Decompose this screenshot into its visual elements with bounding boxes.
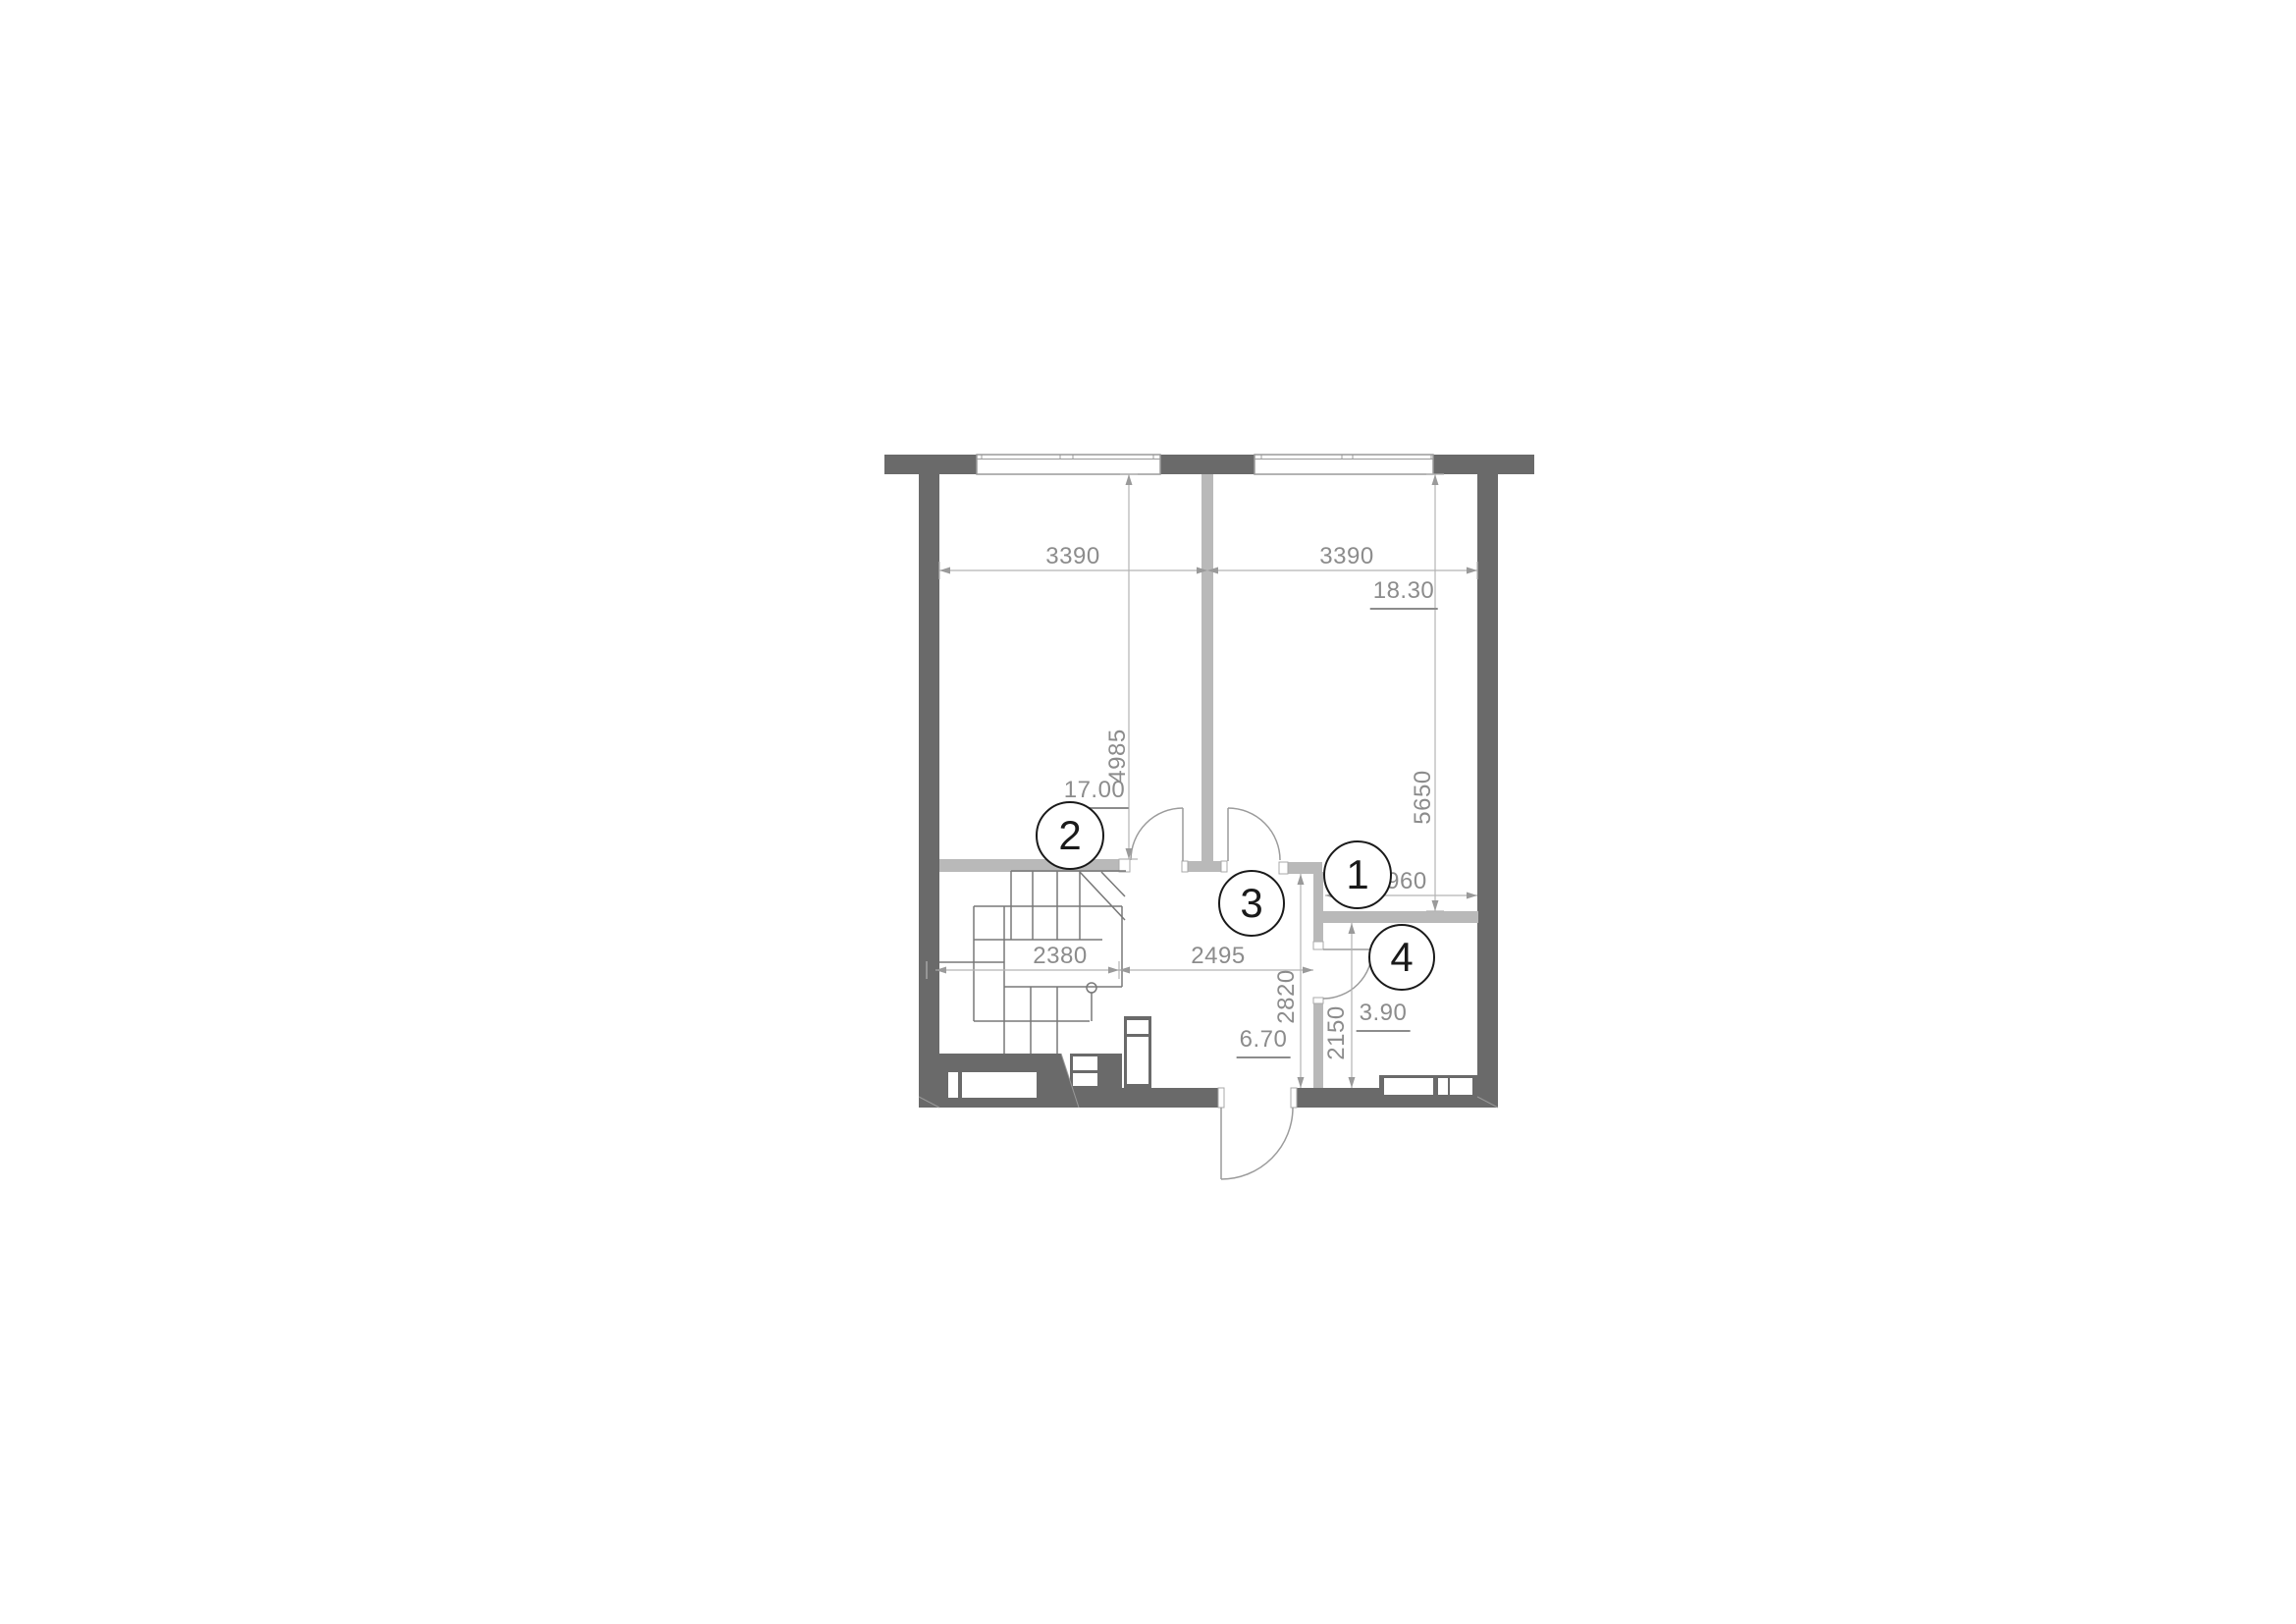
dim-stairs-width: 2380 xyxy=(1033,945,1087,968)
door-entrance xyxy=(1221,1108,1293,1179)
area-value-room4: 3.90 xyxy=(1357,1000,1411,1032)
area-label-room4: 3.90 xyxy=(1357,1001,1411,1025)
window-2 xyxy=(1255,455,1433,474)
room-circle-2: 2 xyxy=(1036,801,1104,870)
area-value-room3: 6.70 xyxy=(1237,1026,1291,1058)
area-label-room2: 17.00 xyxy=(1061,779,1129,802)
room-circle-3: 3 xyxy=(1218,870,1285,937)
dim-room1-height: 5650 xyxy=(1412,770,1435,824)
area-label-room3: 6.70 xyxy=(1237,1028,1291,1052)
dim-hall-width: 2495 xyxy=(1191,945,1245,968)
room-circle-4: 4 xyxy=(1368,924,1435,991)
room-circle-1: 1 xyxy=(1323,840,1392,909)
dim-top-left-width: 3390 xyxy=(1045,545,1099,568)
door-room2 xyxy=(1131,808,1183,861)
door-bathroom xyxy=(1323,949,1372,999)
door-room1 xyxy=(1228,808,1280,861)
interior-partitions xyxy=(939,474,1478,1088)
dim-top-right-width: 3390 xyxy=(1319,545,1373,568)
floor-plan-drawing xyxy=(0,0,2296,1624)
dim-room2-height: 4985 xyxy=(1106,729,1130,783)
floor-plan: 3390 3390 4985 5650 2380 2495 2820 2150 … xyxy=(0,0,2296,1624)
area-value-room1: 18.30 xyxy=(1370,577,1438,610)
window-1 xyxy=(977,455,1160,474)
area-label-room1: 18.30 xyxy=(1370,579,1438,603)
dim-hall-height: 2820 xyxy=(1275,969,1299,1023)
dim-bath-height: 2150 xyxy=(1325,1005,1349,1059)
